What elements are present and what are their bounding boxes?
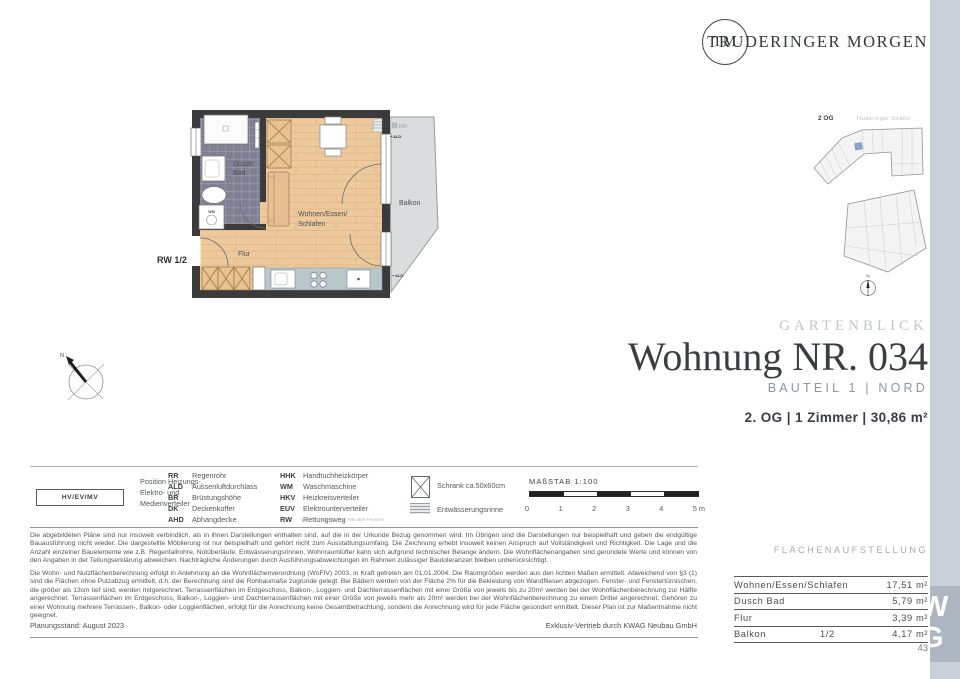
scale-tick: 0 bbox=[525, 504, 529, 513]
watermark-letter: W bbox=[930, 592, 960, 623]
escape-route-label: RW 1/2 bbox=[157, 255, 187, 265]
legend-item: EUVElektrounterverteiler bbox=[280, 503, 368, 514]
rr-icon bbox=[392, 123, 397, 128]
floor-plan: HKV/EUV WM bbox=[186, 104, 442, 304]
scale-segment bbox=[664, 492, 698, 496]
toilet-icon bbox=[202, 187, 226, 204]
room-label-bath-2: Bad bbox=[233, 170, 246, 177]
legend-item: HHKHandtuchheizkörper bbox=[280, 470, 368, 481]
legend-item: AHDAbhangdecke bbox=[168, 514, 257, 525]
legend-item: DKDeckenkoffer bbox=[168, 503, 257, 514]
disclaimer-paragraph-1: Die abgebildeten Pläne sind nur insoweit… bbox=[30, 532, 697, 566]
shower-icon bbox=[204, 115, 248, 144]
sofa-icon bbox=[268, 172, 289, 226]
kitchen-sink-icon bbox=[271, 270, 295, 288]
room-label-bath-1: Dusch bbox=[233, 161, 253, 168]
room-label-living-2: Schlafen bbox=[298, 221, 325, 228]
kwag-watermark: W G bbox=[930, 586, 960, 662]
tall-cabinet-icon bbox=[253, 267, 265, 290]
site-plan-highlight-unit bbox=[855, 142, 863, 150]
rr-label: RR bbox=[399, 124, 407, 130]
scale-tick: 3 bbox=[626, 504, 630, 513]
page-title: Wohnung NR. 034 bbox=[408, 336, 928, 378]
wm-label: WM bbox=[208, 210, 214, 214]
scale-segment bbox=[530, 492, 564, 496]
room-label-balcony: Balkon bbox=[399, 200, 421, 207]
scale-tick: 4 bbox=[659, 504, 663, 513]
site-plan-street-label: Truderinger Straße bbox=[856, 116, 910, 122]
scale-tick: 1 bbox=[559, 504, 563, 513]
footer-rule bbox=[30, 637, 698, 638]
room-label-hall: Flur bbox=[238, 251, 251, 258]
washing-machine-icon: WM bbox=[199, 205, 224, 229]
table-row: Balkon 1/2 4,17 m² bbox=[734, 627, 928, 644]
fridge-icon bbox=[347, 270, 370, 288]
apartment-details: 2. OG | 1 Zimmer | 30,86 m² bbox=[408, 410, 928, 425]
brand-wordmark: TRUDERINGER MORGEN bbox=[707, 32, 928, 52]
site-plan-floor-label: 2 OG bbox=[818, 115, 834, 122]
building-section: BAUTEIL 1 | NORD bbox=[408, 381, 928, 395]
site-plan-building-north bbox=[814, 128, 923, 184]
wardrobe-symbol-icon bbox=[411, 476, 430, 498]
scale-segment bbox=[631, 492, 665, 496]
brochure-page: W G TM TRUDERINGER MORGEN bbox=[0, 0, 960, 679]
scale-segment bbox=[564, 492, 598, 496]
escape-route-note: (Anleiterstelle wenn 2. RW über Fenster) bbox=[301, 517, 384, 522]
drainage-symbol-label: Entwässerungsrinne bbox=[437, 505, 503, 514]
drainage-channel-icon bbox=[373, 119, 382, 132]
ald-label-bottom: ALD bbox=[395, 273, 403, 278]
compass-north-label: N bbox=[60, 353, 64, 359]
legend-item: HKVHeizkreisverteiler bbox=[280, 492, 368, 503]
page-number: 43 bbox=[734, 643, 928, 653]
site-plan-compass-icon: N bbox=[861, 274, 876, 297]
watermark-letter: G bbox=[930, 623, 960, 654]
drainage-symbol-icon bbox=[410, 503, 430, 514]
site-plan-north-label: N bbox=[866, 274, 869, 279]
title-block: GARTENBLICK Wohnung NR. 034 BAUTEIL 1 | … bbox=[408, 318, 928, 425]
legend-item: ALDAussenluftdurchlass bbox=[168, 481, 257, 492]
site-plan: 2 OG Truderinger Straße N bbox=[806, 106, 934, 302]
scale-segment bbox=[597, 492, 631, 496]
legend-top-rule bbox=[30, 466, 698, 467]
hv-ev-mv-box: HV/EV/MV bbox=[36, 489, 124, 506]
ald-label-top: ALD bbox=[393, 134, 401, 139]
area-table-title: FLÄCHENAUFSTELLUNG bbox=[734, 545, 928, 555]
scale-ticks: 0 1 2 3 4 5 m bbox=[525, 504, 705, 513]
legend-item: RRRegenrohr bbox=[168, 470, 257, 481]
table-row: Wohnen/Essen/Schlafen 17,51 m² bbox=[734, 577, 928, 594]
table-row: Dusch Bad 5,79 m² bbox=[734, 594, 928, 611]
wardrobe-symbol-label: Schrank ca.50x60cm bbox=[437, 481, 505, 490]
area-table: Wohnen/Essen/Schlafen 17,51 m² Dusch Bad… bbox=[734, 576, 928, 643]
legend-column-1: RRRegenrohr ALDAussenluftdurchlass BRBrü… bbox=[168, 470, 257, 524]
scale-bar bbox=[529, 491, 699, 497]
legend-item: WMWaschmaschine bbox=[280, 481, 368, 492]
scale-tick: 2 bbox=[592, 504, 596, 513]
room-label-living-1: Wohnen/Essen/ bbox=[298, 211, 347, 218]
edge-accent-strip bbox=[930, 0, 960, 679]
compass-icon: N bbox=[56, 348, 112, 410]
table-row: Flur 3,39 m² bbox=[734, 610, 928, 627]
towel-radiator-icon bbox=[255, 122, 259, 148]
entrance-opening bbox=[192, 236, 201, 266]
legend-bottom-rule bbox=[30, 527, 698, 528]
scale-label: MAßSTAB 1:100 bbox=[529, 477, 598, 486]
disclaimer-paragraph-2: Die Wohn- und Nutzflächenberechnung erfo… bbox=[30, 570, 697, 620]
legend-item: BRBrüstungshöhe bbox=[168, 492, 257, 503]
distributor: Exklusiv-Vertrieb durch KWAG Neubau GmbH bbox=[30, 621, 697, 630]
project-name: GARTENBLICK bbox=[408, 318, 928, 335]
site-plan-building-south bbox=[844, 190, 926, 272]
scale-tick: 5 m bbox=[693, 504, 705, 513]
